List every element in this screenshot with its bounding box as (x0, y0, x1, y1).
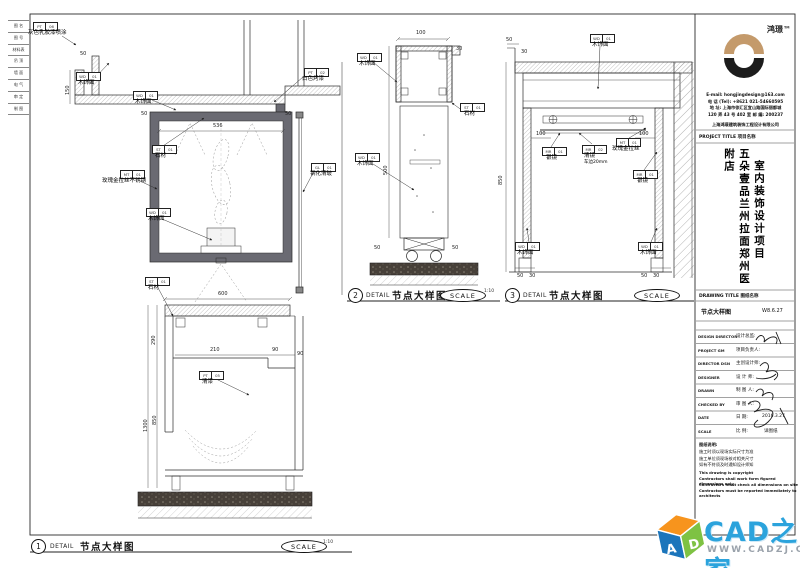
tag-code: 06 (46, 23, 57, 30)
material-label: 清镜 (584, 154, 595, 160)
detail-number-1: 1 (31, 539, 46, 554)
scale-oval: SCALE (634, 289, 680, 302)
tag-code: WD (516, 243, 528, 250)
tag-code: WD (147, 209, 159, 216)
material-label: 石材 (464, 112, 475, 118)
dimension: 536 (213, 124, 223, 129)
tag-code: 01 (158, 278, 169, 285)
material-label: 木饰面 (592, 43, 609, 49)
tag-code: WD (77, 73, 89, 80)
project-type: 室内装饰设计项目 (752, 160, 767, 275)
detail-number-2: 2 (348, 288, 363, 303)
dimension: 90 (297, 352, 303, 357)
material-label: 木饰面 (78, 81, 95, 87)
material-label: 清漆 (202, 380, 213, 386)
tag-code: 02 (317, 69, 328, 76)
dimension: 50 (517, 274, 523, 279)
legend-row: 审 定 (8, 92, 29, 104)
material-label: 钢化清玻 (310, 172, 332, 178)
dimension: 600 (218, 292, 228, 297)
field-label-cn: 设 计 师: (736, 374, 754, 380)
dimension: 50 (506, 38, 512, 43)
legend-row: 制 图 (8, 104, 29, 116)
field-label-cn: 日 期: (736, 414, 748, 420)
material-label: 石材 (155, 154, 166, 160)
dimension: 50 (452, 246, 458, 251)
scale-oval: SCALE (440, 289, 486, 302)
tag-code: WD (639, 243, 651, 250)
dimension: 50 (141, 112, 147, 117)
field-label-cn: 设计总监: (736, 333, 756, 339)
note-line: 如有不符须及时通知设计师知 (699, 462, 753, 468)
legend-row: 图 号 (8, 33, 29, 45)
tag-code: 01 (146, 92, 157, 99)
field-label-cn: 主创设计师: (736, 360, 760, 366)
dimension: 90 (272, 348, 278, 353)
material-label: 木饰面 (135, 100, 152, 106)
legend-row: 电 气 (8, 80, 29, 92)
field-label-cn: 项目负责人: (736, 347, 760, 353)
project-name: 五朵壹品兰州拉面郑州医附店 (722, 148, 752, 286)
tag-code: 01 (528, 243, 539, 250)
legend-row: 材料表 (8, 45, 29, 57)
tag-code: WD (356, 154, 368, 161)
scale-ratio: 1:10 (323, 540, 333, 545)
tag-code: MR (583, 146, 595, 153)
drawing-linework: A D (0, 0, 800, 568)
tag-code: 01 (159, 209, 170, 216)
dimension: 50 (641, 274, 647, 279)
tag-code: ST (461, 104, 473, 111)
notes-heading: 图纸说明: (699, 442, 717, 448)
dimension: 500 (384, 165, 389, 175)
material-label: 灰色乳胶漆喷涂 (28, 31, 67, 37)
dimension: 100 (536, 132, 546, 137)
field-label-en: SCALE (698, 429, 711, 434)
tag-code: PT (200, 372, 212, 379)
field-label-en: DATE (698, 415, 709, 420)
dimension: 850 (499, 175, 504, 185)
tag-code: 01 (555, 148, 566, 155)
field-label-en: DESIGNER (698, 375, 720, 380)
detail-word: DETAIL (50, 543, 74, 550)
tag-code: MR (543, 148, 555, 155)
material-label: 木饰面 (517, 251, 534, 257)
dimension: 100 (639, 132, 649, 137)
tag-code: WD (358, 54, 370, 61)
dimension: 850 (153, 415, 158, 425)
tag-code: 01 (646, 171, 657, 178)
detail-title: 节点大样图 (549, 288, 604, 302)
contact-line: E-mail: hongjingdesign@163.com (697, 92, 794, 99)
tag-code: ST (153, 146, 165, 153)
tag-code: 01 (603, 35, 614, 42)
detail-word: DETAIL (366, 292, 390, 299)
field-label-cn: 审 图 人: (736, 401, 754, 407)
scale-ratio: 1:10 (484, 289, 494, 294)
material-label: 银镜 (546, 156, 557, 162)
note-line-en: Contractors must check all dimensions on… (699, 482, 798, 487)
material-label: 石材 (148, 286, 159, 292)
dimension: 1300 (144, 419, 149, 432)
tag-code: PT (305, 69, 317, 76)
contact-line: 120 弄 43 号 402 室 邮 编: 200237 (697, 112, 794, 119)
dimension: 30 (653, 274, 659, 279)
dimension: 30 (529, 274, 535, 279)
material-label: 木饰面 (359, 62, 376, 68)
tag-code: MR (634, 171, 646, 178)
material-label: 木饰面 (357, 162, 374, 168)
tag-code: 02 (595, 146, 606, 153)
scale-oval: SCALE (281, 540, 327, 553)
tag-code: 01 (629, 139, 640, 146)
sheet-legend: 图 名 图 号 材料表 吊 顶 墙 面 电 气 审 定 制 图 (8, 20, 29, 115)
detail-word: DETAIL (523, 292, 547, 299)
dimension: 150 (66, 85, 71, 95)
dimension: 50 (285, 112, 291, 117)
material-label: 白色烤漆 (302, 77, 324, 83)
field-label-en: DESIGN DIRECTOR (698, 334, 737, 339)
dimension: 50 (374, 246, 380, 251)
note-line: 施工单位须现场核对相关尺寸 (699, 456, 753, 462)
cad-cube-logo: A D (654, 510, 707, 564)
company-name: 上海鸿璟建筑装饰工程设计有限公司 (697, 122, 794, 128)
note-line: 施工时须以现场实际尺寸为准 (699, 449, 753, 455)
detail-title: 节点大样图 (80, 539, 135, 553)
tag-code: 01 (368, 154, 379, 161)
cadzj-watermark-title[interactable]: CAD之家 (704, 510, 800, 568)
tag-code: 01 (165, 146, 176, 153)
field-label-en: DRAWN (698, 388, 714, 393)
tag-code: MT (121, 171, 133, 178)
tag-code: GL (312, 164, 324, 171)
dimension: 100 (416, 31, 426, 36)
contact-line: 地 址: 上海市徐汇区宜山路国际丽都城 (697, 105, 794, 112)
material-label: 银镜 (637, 179, 648, 185)
drawing-sheet: A D 图 名 图 号 材料表 吊 顶 墙 面 电 气 审 定 制 图 PT06… (0, 0, 800, 568)
tag-code: 05 (212, 372, 223, 379)
tag-code: ST (146, 278, 158, 285)
tag-code: WD (591, 35, 603, 42)
legend-row: 墙 面 (8, 68, 29, 80)
material-label: 木饰面 (640, 251, 657, 257)
material-label: 玫瑰金拉丝 (612, 147, 640, 153)
dimension: 30 (456, 47, 462, 52)
dimension: 30 (521, 50, 527, 55)
cadzj-watermark-url[interactable]: WWW.CADZJ.COM (707, 545, 800, 555)
scale-value: 详图纸 (764, 428, 778, 434)
field-label-cn: 制 图 人: (736, 387, 754, 393)
note-line-en: This drawing is copyright (699, 470, 753, 475)
tag-code: 01 (133, 171, 144, 178)
tag-code: WD (134, 92, 146, 99)
detail-number-3: 3 (505, 288, 520, 303)
material-label: 木饰面 (148, 217, 165, 223)
field-label-cn: 比 例: (736, 428, 748, 434)
tag-code: 01 (324, 164, 335, 171)
brand-name: 鸿璟™ (735, 24, 791, 35)
material-label: 车边20mm (584, 161, 608, 166)
date-value: 2016.3.27 (762, 414, 785, 419)
legend-row: 图 名 (8, 21, 29, 33)
note-line-en: Contractors must be reported immediately… (699, 488, 800, 498)
field-label-en: DIRECTOR DSN (698, 361, 730, 366)
drawing-title: 节点大样图 (701, 307, 731, 316)
tag-code: 01 (89, 73, 100, 80)
tag-code: MT (617, 139, 629, 146)
tag-code: PT (34, 23, 46, 30)
dimension: 50 (80, 52, 86, 57)
tag-code: 01 (370, 54, 381, 61)
material-label: 玫瑰金拉丝不锈钢 (102, 179, 146, 185)
drawing-number: W8.6.27 (762, 308, 783, 314)
legend-row: 吊 顶 (8, 56, 29, 68)
field-label-en: CHECKED BY (698, 402, 725, 407)
dimension: 210 (210, 348, 220, 353)
field-label-en: PROJECT GM (698, 348, 725, 353)
project-title-label: PROJECT TITLE 项目名称 (699, 134, 756, 140)
detail-title: 节点大样图 (392, 288, 447, 302)
tag-code: 01 (651, 243, 662, 250)
tag-code: 01 (473, 104, 484, 111)
company-contact: E-mail: hongjingdesign@163.com 电 话 (Tel)… (697, 92, 794, 118)
company-logo (724, 34, 764, 78)
dimension: 290 (152, 335, 157, 345)
drawing-title-label: DRAWING TITLE 图纸名称 (699, 293, 758, 299)
